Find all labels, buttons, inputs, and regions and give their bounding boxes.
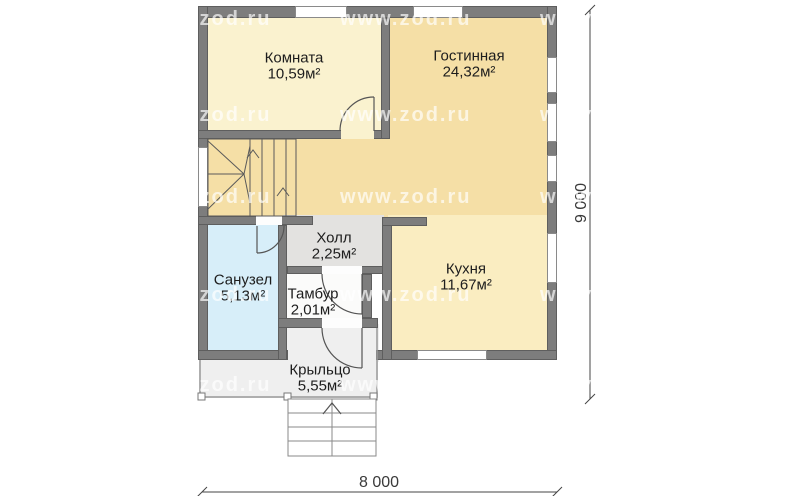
room-name: Холл bbox=[312, 231, 357, 246]
room-name: Комната bbox=[265, 51, 324, 66]
room-name: Тамбур bbox=[288, 287, 339, 302]
room-label-sanuzel: Санузел 5,13м² bbox=[214, 273, 272, 304]
room-name: Крыльцо bbox=[289, 363, 350, 378]
room-area: 2,01м² bbox=[288, 303, 339, 318]
room-name: Гостинная bbox=[433, 49, 504, 64]
door-bathroom bbox=[257, 226, 284, 253]
room-area: 11,67м² bbox=[440, 278, 492, 293]
room-label-kryltso: Крыльцо 5,55м² bbox=[289, 363, 350, 394]
room-area: 2,25м² bbox=[312, 247, 357, 262]
room-area: 10,59м² bbox=[265, 67, 324, 82]
room-label-komnata: Комната 10,59м² bbox=[265, 51, 324, 82]
floor-plan: Комната 10,59м² Гостинная 24,32м² Холл 2… bbox=[0, 0, 795, 496]
dimension-height-label: 9 000 bbox=[573, 183, 591, 223]
room-area: 24,32м² bbox=[433, 65, 504, 80]
plan-linework bbox=[0, 0, 795, 496]
room-area: 5,13м² bbox=[214, 289, 272, 304]
room-area: 5,55м² bbox=[289, 379, 350, 394]
room-name: Кухня bbox=[440, 262, 492, 277]
room-label-gostinnaya: Гостинная 24,32м² bbox=[433, 49, 504, 80]
entry-steps-icon bbox=[288, 399, 376, 456]
dimension-width-label: 8 000 bbox=[359, 474, 399, 492]
room-label-kukhnya: Кухня 11,67м² bbox=[440, 262, 492, 293]
room-name: Санузел bbox=[214, 273, 272, 288]
room-label-tambur: Тамбур 2,01м² bbox=[288, 287, 339, 318]
door-bedroom bbox=[340, 97, 374, 131]
room-label-kholl: Холл 2,25м² bbox=[312, 231, 357, 262]
staircase-icon bbox=[208, 139, 296, 216]
